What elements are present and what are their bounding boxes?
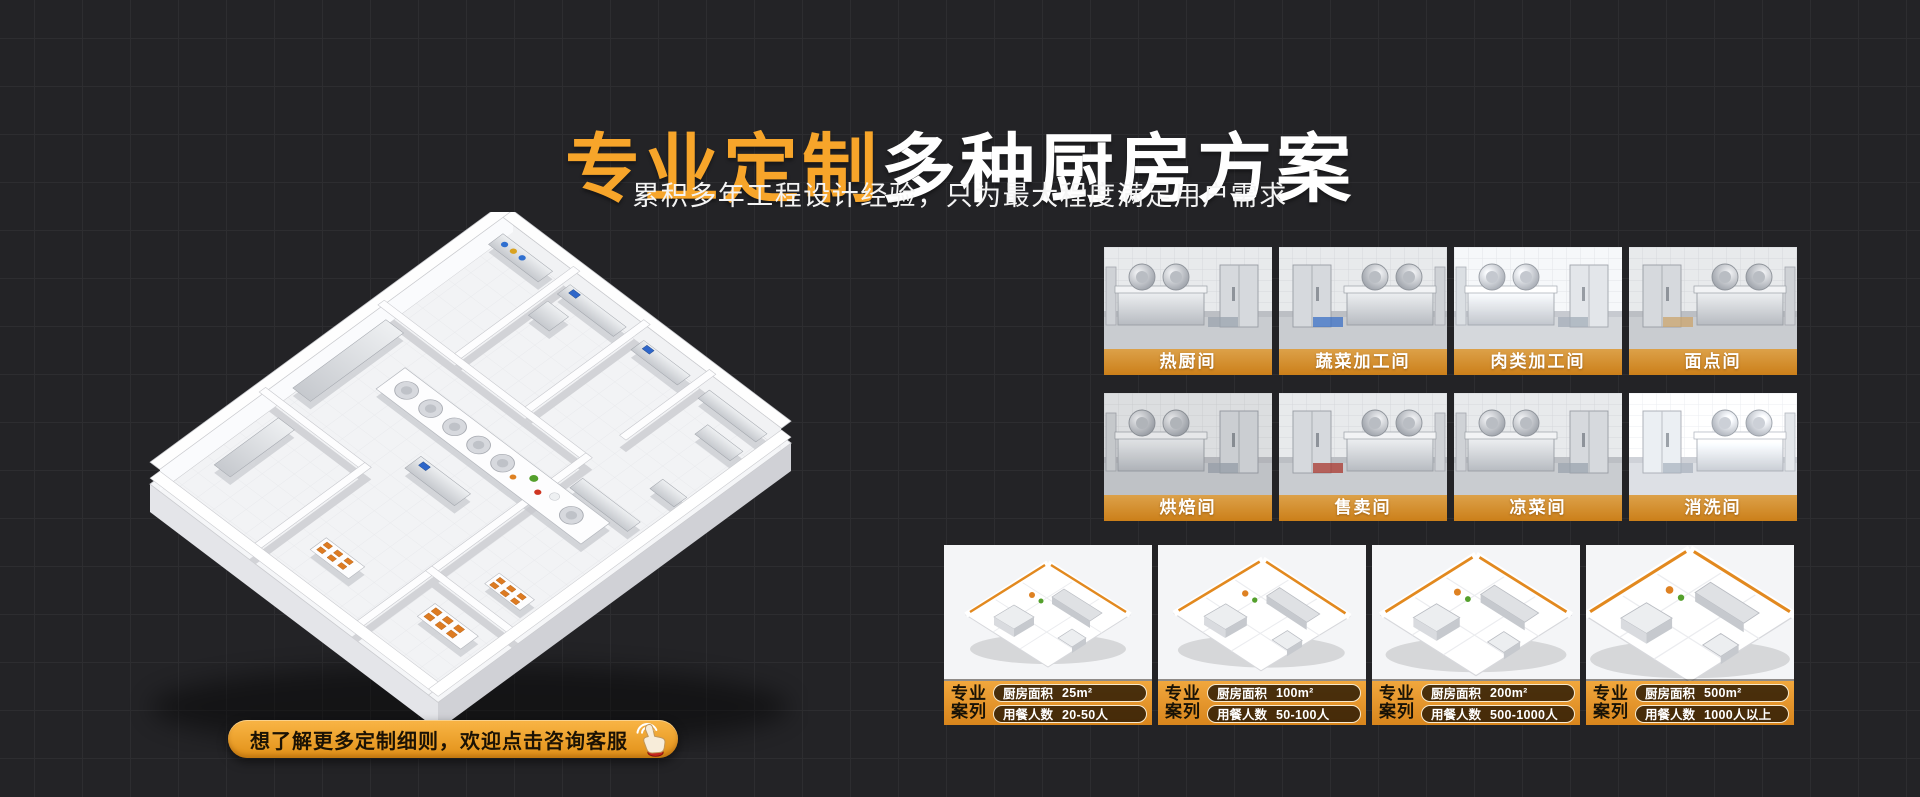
room-label: 热厨间 bbox=[1104, 349, 1272, 375]
hand-click-icon bbox=[632, 721, 670, 757]
case-floorplan-thumbnail bbox=[1586, 545, 1794, 700]
room-tile[interactable]: 热厨间 bbox=[1104, 247, 1272, 375]
case-badge-line1: 专业 bbox=[1593, 685, 1629, 703]
diners-count-label: 用餐人数 bbox=[1645, 704, 1695, 723]
diners-count-value: 20-50人 bbox=[1062, 704, 1108, 723]
case-info-bar: 专业 案列 厨房面积 100m² 用餐人数 50-100人 bbox=[1158, 681, 1366, 725]
consult-cta-button[interactable]: 想了解更多定制细则，欢迎点击咨询客服 bbox=[228, 720, 678, 758]
diners-count-label: 用餐人数 bbox=[1431, 704, 1481, 723]
kitchen-area-label: 厨房面积 bbox=[1217, 683, 1267, 702]
case-tile[interactable]: 专业 案列 厨房面积 500m² 用餐人数 1000人以上 bbox=[1586, 545, 1794, 725]
room-tile[interactable]: 消洗间 bbox=[1629, 393, 1797, 521]
room-label: 烘焙间 bbox=[1104, 495, 1272, 521]
case-badge-line1: 专业 bbox=[951, 685, 987, 703]
room-label: 售卖间 bbox=[1279, 495, 1447, 521]
room-tile[interactable]: 烘焙间 bbox=[1104, 393, 1272, 521]
case-info-bar: 专业 案列 厨房面积 25m² 用餐人数 20-50人 bbox=[944, 681, 1152, 725]
case-floorplan-thumbnail bbox=[944, 545, 1152, 681]
case-badge: 专业 案列 bbox=[1593, 685, 1629, 721]
kitchen-area-value: 500m² bbox=[1704, 686, 1742, 700]
case-tile[interactable]: 专业 案列 厨房面积 100m² 用餐人数 50-100人 bbox=[1158, 545, 1366, 725]
case-badge-line1: 专业 bbox=[1165, 685, 1201, 703]
page-subtitle: 累积多年工程设计经验，只为最大程度满足用户需求 bbox=[0, 174, 1920, 213]
diners-count-label: 用餐人数 bbox=[1003, 704, 1053, 723]
case-floorplan-thumbnail bbox=[1372, 545, 1580, 692]
kitchen-area-value: 200m² bbox=[1490, 686, 1528, 700]
room-label: 肉类加工间 bbox=[1454, 349, 1622, 375]
room-tile[interactable]: 面点间 bbox=[1629, 247, 1797, 375]
diners-count-value: 50-100人 bbox=[1276, 704, 1330, 723]
case-badge-line2: 案列 bbox=[1593, 703, 1629, 721]
room-photo bbox=[1279, 393, 1447, 495]
kitchen-area-label: 厨房面积 bbox=[1003, 683, 1053, 702]
room-photo bbox=[1454, 393, 1622, 495]
case-tile[interactable]: 专业 案列 厨房面积 200m² 用餐人数 500-1000人 bbox=[1372, 545, 1580, 725]
cases-row: 专业 案列 厨房面积 25m² 用餐人数 20-50人 bbox=[944, 545, 1794, 725]
room-tile[interactable]: 蔬菜加工间 bbox=[1279, 247, 1447, 375]
room-label: 蔬菜加工间 bbox=[1279, 349, 1447, 375]
diners-count-value: 500-1000人 bbox=[1490, 704, 1558, 723]
room-tile[interactable]: 售卖间 bbox=[1279, 393, 1447, 521]
case-badge: 专业 案列 bbox=[1165, 685, 1201, 721]
case-badge: 专业 案列 bbox=[1379, 685, 1415, 721]
room-tile[interactable]: 肉类加工间 bbox=[1454, 247, 1622, 375]
case-info-bar: 专业 案列 厨房面积 200m² 用餐人数 500-1000人 bbox=[1372, 681, 1580, 725]
kitchen-area-pill: 厨房面积 500m² bbox=[1635, 684, 1789, 702]
consult-cta-label: 想了解更多定制细则，欢迎点击咨询客服 bbox=[250, 725, 628, 754]
kitchen-area-label: 厨房面积 bbox=[1431, 683, 1481, 702]
kitchen-area-pill: 厨房面积 100m² bbox=[1207, 684, 1361, 702]
room-photo bbox=[1104, 247, 1272, 349]
room-photo bbox=[1104, 393, 1272, 495]
room-label: 面点间 bbox=[1629, 349, 1797, 375]
diners-count-pill: 用餐人数 1000人以上 bbox=[1635, 705, 1789, 723]
kitchen-area-value: 25m² bbox=[1062, 686, 1092, 700]
case-badge-line2: 案列 bbox=[951, 703, 987, 721]
case-badge-line2: 案列 bbox=[1165, 703, 1201, 721]
case-floorplan-thumbnail bbox=[1158, 545, 1366, 688]
room-photo bbox=[1454, 247, 1622, 349]
hero-section: 专业定制多种厨房方案 累积多年工程设计经验，只为最大程度满足用户需求 bbox=[0, 0, 1920, 797]
isometric-kitchen-floorplan-render bbox=[118, 212, 808, 752]
diners-count-label: 用餐人数 bbox=[1217, 704, 1267, 723]
room-photo bbox=[1279, 247, 1447, 349]
kitchen-area-label: 厨房面积 bbox=[1645, 683, 1695, 702]
room-tile[interactable]: 凉菜间 bbox=[1454, 393, 1622, 521]
room-label: 消洗间 bbox=[1629, 495, 1797, 521]
diners-count-pill: 用餐人数 50-100人 bbox=[1207, 705, 1361, 723]
case-badge: 专业 案列 bbox=[951, 685, 987, 721]
diners-count-pill: 用餐人数 20-50人 bbox=[993, 705, 1147, 723]
room-label: 凉菜间 bbox=[1454, 495, 1622, 521]
case-badge-line1: 专业 bbox=[1379, 685, 1415, 703]
kitchen-area-pill: 厨房面积 200m² bbox=[1421, 684, 1575, 702]
room-photo bbox=[1629, 247, 1797, 349]
case-tile[interactable]: 专业 案列 厨房面积 25m² 用餐人数 20-50人 bbox=[944, 545, 1152, 725]
case-badge-line2: 案列 bbox=[1379, 703, 1415, 721]
case-info-bar: 专业 案列 厨房面积 500m² 用餐人数 1000人以上 bbox=[1586, 681, 1794, 725]
kitchen-area-value: 100m² bbox=[1276, 686, 1314, 700]
kitchen-area-pill: 厨房面积 25m² bbox=[993, 684, 1147, 702]
rooms-grid: 热厨间 蔬菜加工间 bbox=[1104, 247, 1797, 521]
diners-count-pill: 用餐人数 500-1000人 bbox=[1421, 705, 1575, 723]
room-photo bbox=[1629, 393, 1797, 495]
diners-count-value: 1000人以上 bbox=[1704, 704, 1771, 723]
